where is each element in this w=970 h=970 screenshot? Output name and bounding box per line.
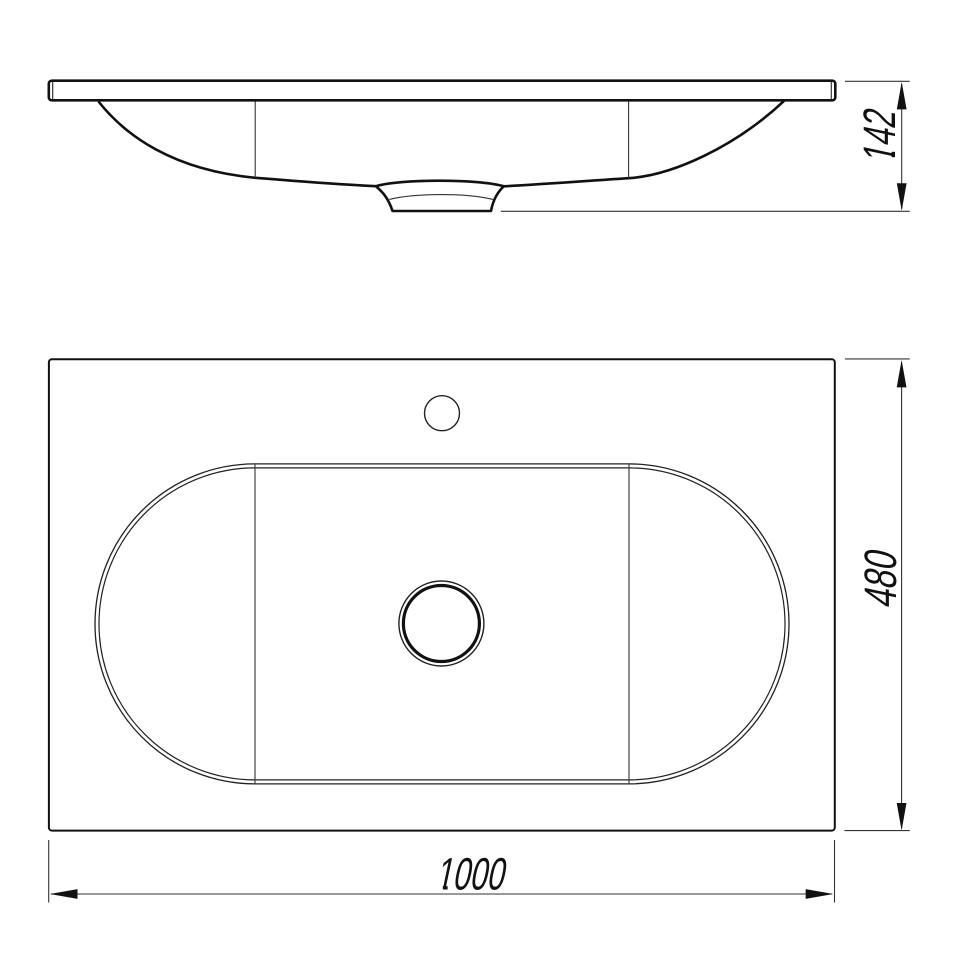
svg-text:1000: 1000 xyxy=(433,848,512,899)
svg-text:480: 480 xyxy=(854,544,905,611)
svg-text:142: 142 xyxy=(853,103,904,166)
